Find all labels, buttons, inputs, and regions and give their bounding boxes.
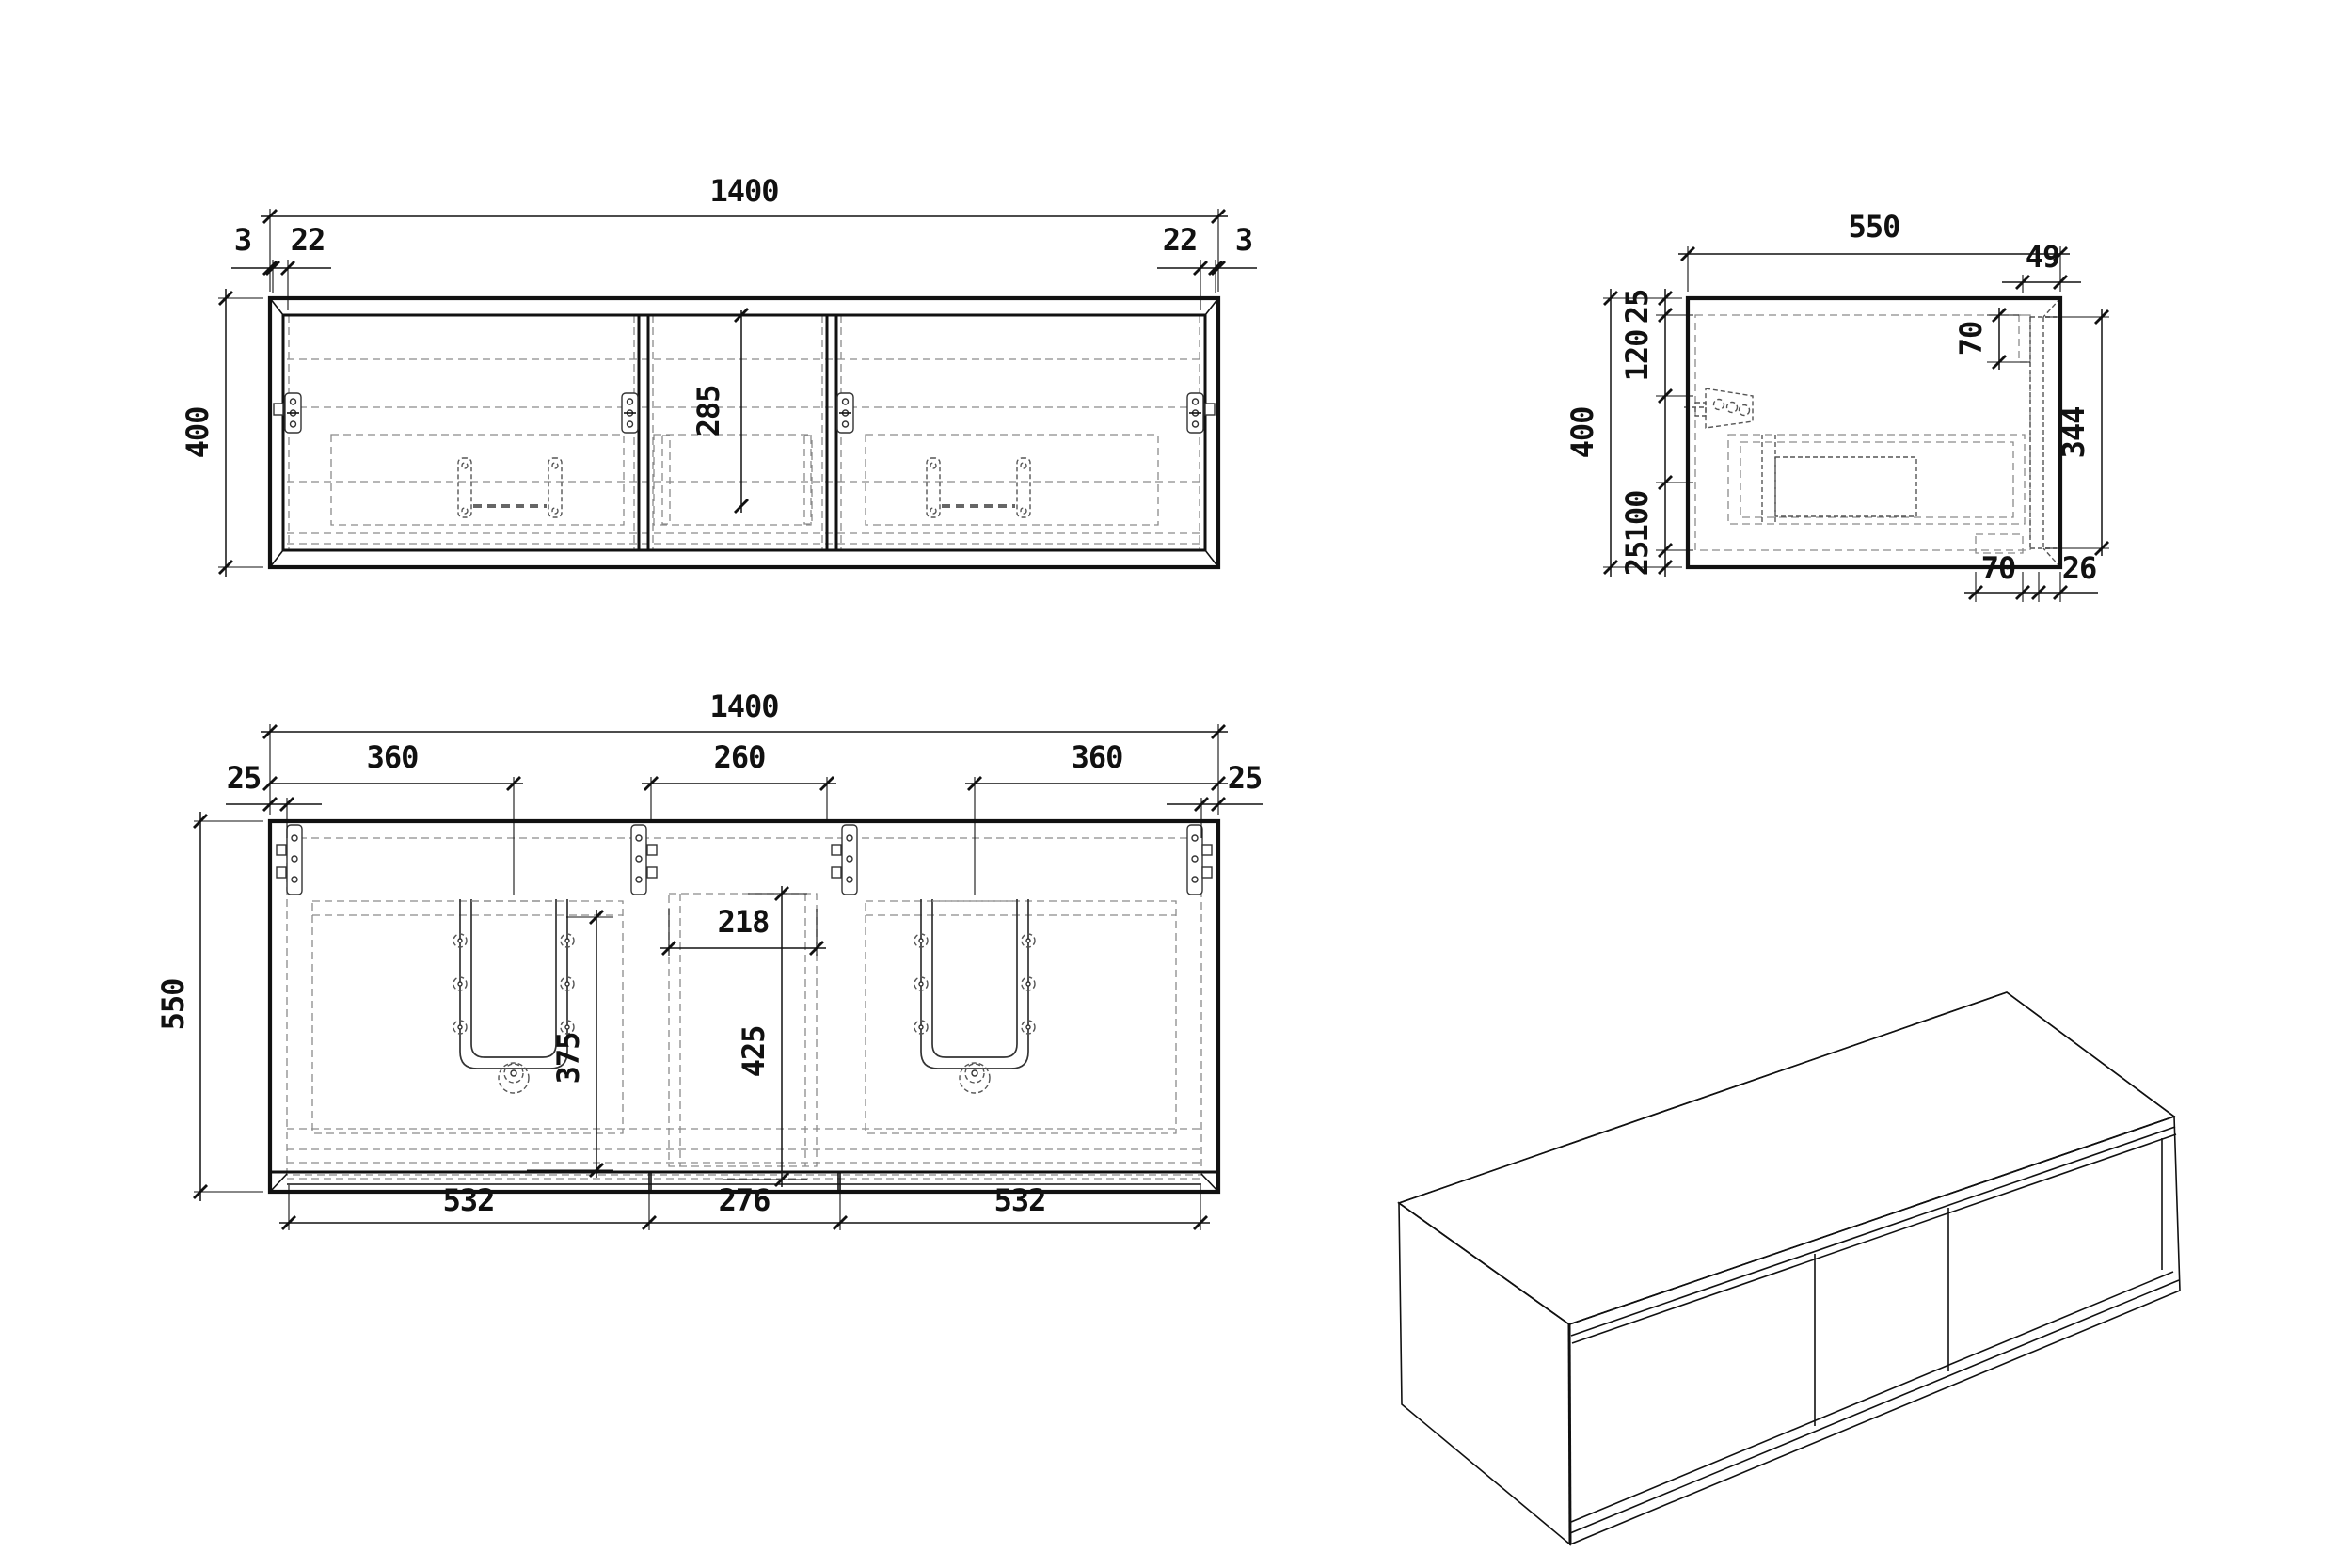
dim-front-edge-left: 3 [234, 222, 251, 258]
dim-front-edge-right: 3 [1235, 222, 1252, 258]
drawing-sheet: 1400322223400285550494002512010025703447… [0, 0, 2352, 1568]
dim-side-top-offset: 120 [1619, 330, 1655, 382]
dim-front-door-height: 285 [691, 386, 726, 437]
dim-plan-width: 1400 [709, 689, 778, 724]
dim-side-bottom-inset: 70 [1981, 550, 2016, 586]
dim-side-bottom-offset: 100 [1619, 491, 1655, 543]
dim-plan-basin-left: 360 [367, 739, 419, 775]
dim-plan-panel-right: 25 [1228, 760, 1263, 796]
technical-drawing-canvas: 1400322223400285550494002512010025703447… [0, 0, 2352, 1568]
dim-side-depth: 550 [1849, 209, 1900, 245]
dim-front-width: 1400 [709, 173, 778, 209]
side-section-view: 550494002512010025703447026 [1565, 209, 2109, 602]
front-elevation-view: 1400322223400285 [180, 173, 1257, 577]
dim-front-frame-right: 22 [1163, 222, 1198, 258]
dim-plan-door-left: 532 [443, 1182, 495, 1218]
plan-section-view: 14003602603602525550218375425532276532 [155, 689, 1263, 1230]
dim-side-height: 400 [1565, 407, 1600, 459]
dim-plan-middle-width: 260 [714, 739, 766, 775]
dim-plan-depth: 550 [155, 979, 191, 1031]
dim-side-door-height: 344 [2056, 407, 2091, 459]
dim-plan-door-middle: 276 [719, 1182, 771, 1218]
dim-plan-cutout-width: 218 [718, 904, 770, 940]
dim-side-top-panel: 25 [1619, 290, 1655, 325]
dim-plan-panel-left: 25 [227, 760, 262, 796]
dim-plan-cutout-depth: 375 [550, 1033, 586, 1085]
dim-side-door-thickness: 26 [2062, 550, 2097, 586]
dim-plan-basin-right: 360 [1072, 739, 1123, 775]
dim-plan-middle-depth: 425 [736, 1026, 771, 1078]
dim-front-height: 400 [180, 407, 215, 459]
dim-side-top-inset: 70 [1953, 322, 1989, 356]
dim-side-bottom-panel: 25 [1619, 542, 1655, 577]
dim-plan-door-right: 532 [994, 1182, 1046, 1218]
dim-side-back-recess: 49 [2026, 239, 2060, 275]
dim-front-frame-left: 22 [291, 222, 326, 258]
isometric-view [1399, 992, 2180, 1544]
